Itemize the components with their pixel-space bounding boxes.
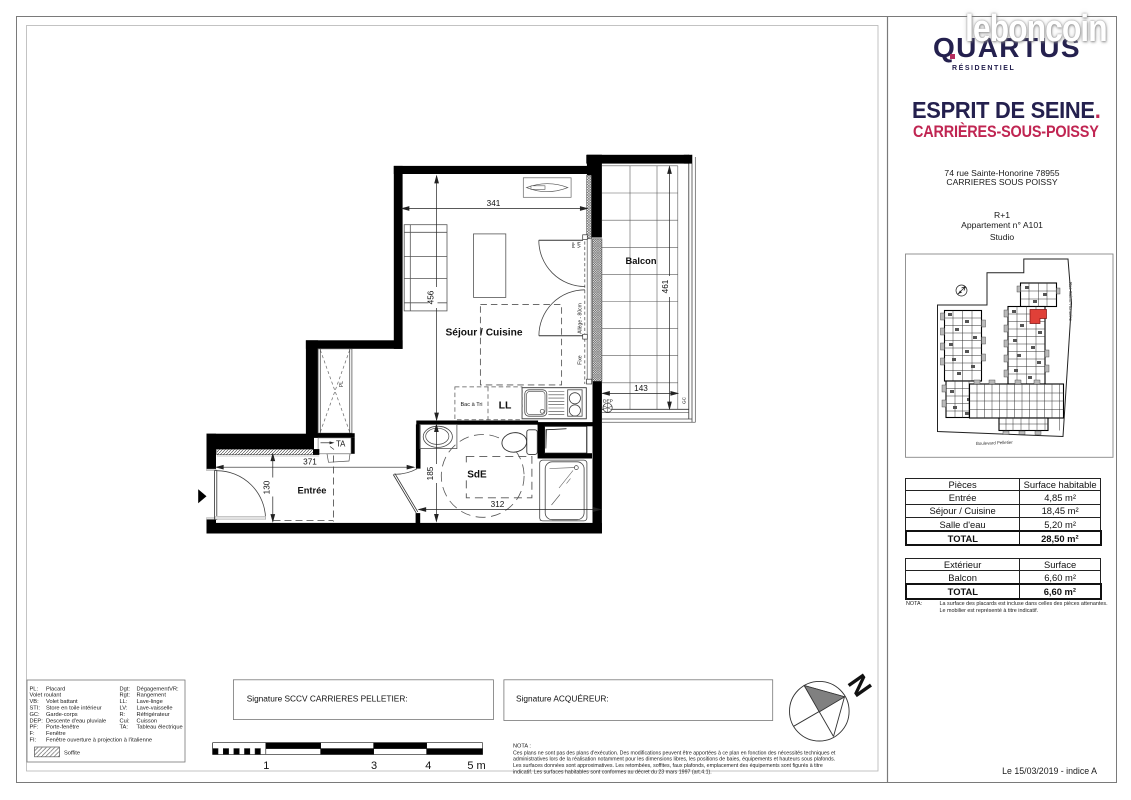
svg-text:Fenêtre: Fenêtre <box>46 731 66 737</box>
svg-text:Lave-vaisselle: Lave-vaisselle <box>137 706 173 712</box>
svg-text:NOTA :: NOTA : <box>513 744 531 750</box>
svg-text:PF: PF <box>571 242 576 248</box>
svg-text:143: 143 <box>634 384 648 393</box>
svg-text:R:: R: <box>120 712 126 718</box>
svg-text:TA:: TA: <box>120 725 129 731</box>
svg-text:185: 185 <box>426 466 435 480</box>
svg-text:371: 371 <box>303 458 317 467</box>
svg-text:Porte-fenêtre: Porte-fenêtre <box>46 725 79 731</box>
svg-text:Les surfaces données sont appr: Les surfaces données sont approximatives… <box>513 763 823 769</box>
svg-text:341: 341 <box>487 199 501 208</box>
svg-text:456: 456 <box>427 290 436 304</box>
svg-text:Descente d'eau pluviale: Descente d'eau pluviale <box>46 718 106 724</box>
svg-text:Garde-corps: Garde-corps <box>46 712 78 718</box>
svg-text:LV:: LV: <box>120 706 128 712</box>
svg-text:Rangement: Rangement <box>137 693 167 699</box>
svg-text:PL:: PL: <box>30 686 39 692</box>
svg-text:Lave-linge: Lave-linge <box>137 699 163 705</box>
svg-text:Volet battant: Volet battant <box>46 699 78 705</box>
svg-text:5 m: 5 m <box>467 760 485 772</box>
svg-text:indicatif. Les surfaces habita: indicatif. Les surfaces habitables sont … <box>513 770 712 776</box>
svg-text:3: 3 <box>371 760 377 772</box>
svg-text:PL: PL <box>339 381 345 387</box>
svg-text:312: 312 <box>491 500 505 509</box>
svg-text:Bac à Tri: Bac à Tri <box>460 402 482 408</box>
svg-text:Tableau électrique: Tableau électrique <box>137 725 183 731</box>
svg-text:Balcon: Balcon <box>626 256 657 266</box>
svg-text:Placard: Placard <box>46 686 65 692</box>
svg-text:Entrée: Entrée <box>298 486 327 496</box>
svg-text:1: 1 <box>263 760 269 772</box>
svg-text:LL: LL <box>499 399 512 411</box>
svg-text:Ces plans ne sont pas des plan: Ces plans ne sont pas des plans d'exécut… <box>513 750 836 756</box>
svg-text:F:: F: <box>30 731 35 737</box>
svg-text:Cuisson: Cuisson <box>137 718 158 724</box>
svg-text:4: 4 <box>425 760 431 772</box>
svg-text:Boulevard Pelletier: Boulevard Pelletier <box>976 440 1014 446</box>
svg-text:Séjour / Cuisine: Séjour / Cuisine <box>446 328 523 339</box>
svg-text:FI:: FI: <box>30 738 37 744</box>
svg-text:DEP: DEP <box>603 398 613 404</box>
svg-text:Rgt:: Rgt: <box>120 693 131 699</box>
svg-text:Fixe: Fixe <box>578 355 584 365</box>
svg-text:DEP:: DEP: <box>30 718 44 724</box>
svg-text:DégagementVR:: DégagementVR: <box>137 686 179 692</box>
svg-text:Store en toile intérieur: Store en toile intérieur <box>46 706 102 712</box>
svg-text:administratives lors de la réa: administratives lors de la réalisation n… <box>513 757 835 763</box>
svg-text:Signature ACQUÉREUR:: Signature ACQUÉREUR: <box>516 694 609 704</box>
svg-text:130: 130 <box>262 480 271 494</box>
svg-text:STI:: STI: <box>30 706 41 712</box>
svg-text:Volet roulant: Volet roulant <box>30 693 62 699</box>
svg-text:SdE: SdE <box>467 470 487 481</box>
svg-text:Soffite: Soffite <box>64 751 80 757</box>
svg-text:Fenêtre ouverture à projection: Fenêtre ouverture à projection à l'itali… <box>46 738 152 744</box>
svg-text:Réfrigérateur: Réfrigérateur <box>137 712 170 718</box>
svg-text:461: 461 <box>661 279 670 293</box>
svg-text:Dgt:: Dgt: <box>120 686 131 692</box>
svg-text:LL:: LL: <box>120 699 128 705</box>
svg-text:Cui:: Cui: <box>120 718 131 724</box>
svg-text:VR: VR <box>577 241 582 248</box>
svg-text:Allège - 80cm: Allège - 80cm <box>578 303 584 334</box>
svg-text:N: N <box>842 669 878 702</box>
svg-text:Signature SCCV CARRIERES PELLE: Signature SCCV CARRIERES PELLETIER: <box>247 694 408 704</box>
svg-text:GC: GC <box>682 396 687 404</box>
svg-text:VB:: VB: <box>30 699 40 705</box>
svg-text:TA: TA <box>336 440 346 449</box>
svg-text:Rue Sainte-Honorine: Rue Sainte-Honorine <box>1068 282 1073 322</box>
svg-text:GC:: GC: <box>30 712 41 718</box>
svg-text:PF:: PF: <box>30 725 39 731</box>
